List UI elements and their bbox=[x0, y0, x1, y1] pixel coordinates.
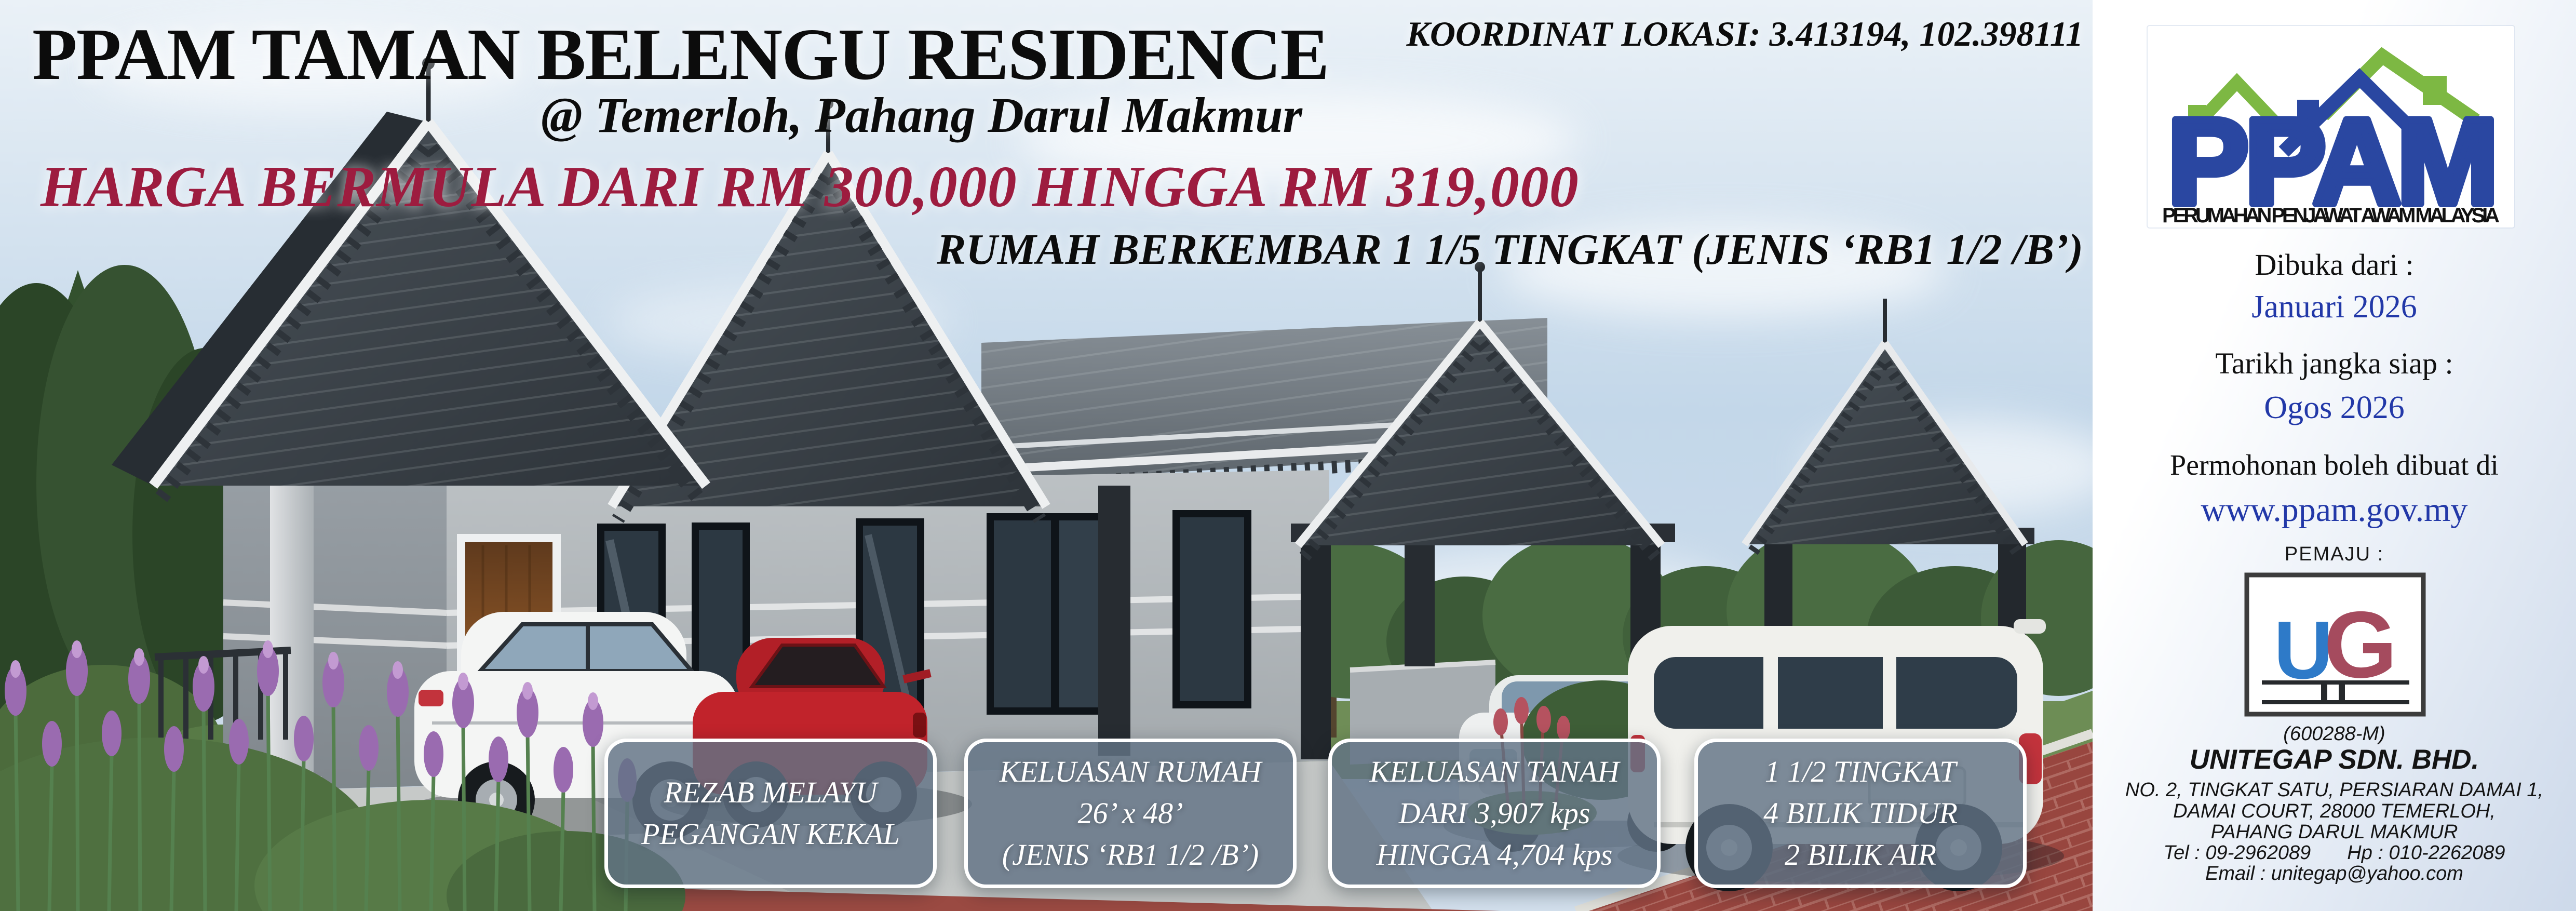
property-ad-banner: PPAM TAMAN BELENGU RESIDENCE @ Temerloh,… bbox=[0, 0, 2576, 911]
company-address-line3: PAHANG DARUL MAKMUR bbox=[2093, 821, 2576, 843]
info-box-rooms: 1 1/2 TINGKAT 4 BILIK TIDUR 2 BILIK AIR bbox=[1694, 739, 2027, 888]
company-address-line2: DAMAI COURT, 28000 TEMERLOH, bbox=[2093, 800, 2576, 823]
info-line: DARI 3,907 kps bbox=[1399, 794, 1590, 833]
info-line: PEGANGAN KEKAL bbox=[641, 815, 900, 853]
company-email: Email : unitegap@yahoo.com bbox=[2093, 863, 2576, 885]
info-box-land-status: REZAB MELAYU PEGANGAN KEKAL bbox=[604, 739, 937, 888]
application-label: Permohonan boleh dibuat di bbox=[2093, 449, 2576, 482]
info-sidebar: PPAM PERUMAHAN PENJAWAT AWAM MALAYSIA Di… bbox=[2093, 0, 2576, 911]
open-date-label: Dibuka dari : bbox=[2093, 247, 2576, 282]
price-range-text: HARGA BERMULA DARI RM 300,000 HINGGA RM … bbox=[41, 154, 1579, 221]
house-render-photo: PPAM TAMAN BELENGU RESIDENCE @ Temerloh,… bbox=[0, 0, 2093, 911]
info-line: 1 1/2 TINGKAT bbox=[1765, 753, 1956, 791]
unitegap-logo: U G bbox=[2242, 570, 2428, 719]
unitegap-logo-graphic: U G bbox=[2242, 570, 2428, 719]
info-line: 26’ x 48’ bbox=[1078, 794, 1183, 833]
website-url: www.ppam.gov.my bbox=[2093, 490, 2576, 530]
ppam-logo: PPAM PERUMAHAN PENJAWAT AWAM MALAYSIA bbox=[2148, 26, 2514, 227]
company-address-line1: NO. 2, TINGKAT SATU, PERSIARAN DAMAI 1, bbox=[2093, 779, 2576, 801]
ppam-logo-graphic: PPAM PERUMAHAN PENJAWAT AWAM MALAYSIA bbox=[2148, 26, 2514, 227]
info-line: REZAB MELAYU bbox=[664, 773, 878, 812]
company-hp: Hp : 010-2262089 bbox=[2347, 842, 2505, 864]
company-phone-line: Tel : 09-2962089Hp : 010-2262089 bbox=[2093, 842, 2576, 864]
developer-label: PEMAJU : bbox=[2093, 543, 2576, 566]
company-tel: Tel : 09-2962089 bbox=[2163, 842, 2311, 864]
location-subtitle: @ Temerloh, Pahang Darul Makmur bbox=[493, 86, 1350, 144]
completion-date-value: Ogos 2026 bbox=[2093, 390, 2576, 426]
house-type-text: RUMAH BERKEMBAR 1 1/5 TINGKAT (JENIS ‘RB… bbox=[937, 224, 2083, 275]
company-registration-no: (600288-M) bbox=[2093, 723, 2576, 745]
info-line: KELUASAN RUMAH bbox=[1000, 753, 1261, 791]
open-date-value: Januari 2026 bbox=[2093, 289, 2576, 326]
info-line: (JENIS ‘RB1 1/2 /B’) bbox=[1002, 836, 1259, 874]
info-line: 2 BILIK AIR bbox=[1785, 836, 1936, 874]
coordinates-text: KOORDINAT LOKASI: 3.413194, 102.398111 bbox=[1406, 14, 2083, 55]
company-name: UNITEGAP SDN. BHD. bbox=[2093, 744, 2576, 775]
completion-date-label: Tarikh jangka siap : bbox=[2093, 346, 2576, 381]
info-box-house-size: KELUASAN RUMAH 26’ x 48’ (JENIS ‘RB1 1/2… bbox=[964, 739, 1297, 888]
info-box-land-size: KELUASAN TANAH DARI 3,907 kps HINGGA 4,7… bbox=[1328, 739, 1661, 888]
ppam-logo-caption: PERUMAHAN PENJAWAT AWAM MALAYSIA bbox=[2162, 204, 2500, 227]
page-title: PPAM TAMAN BELENGU RESIDENCE bbox=[32, 11, 1328, 97]
info-line: HINGGA 4,704 kps bbox=[1377, 836, 1613, 874]
info-line: KELUASAN TANAH bbox=[1370, 753, 1620, 791]
info-line: 4 BILIK TIDUR bbox=[1763, 794, 1958, 833]
